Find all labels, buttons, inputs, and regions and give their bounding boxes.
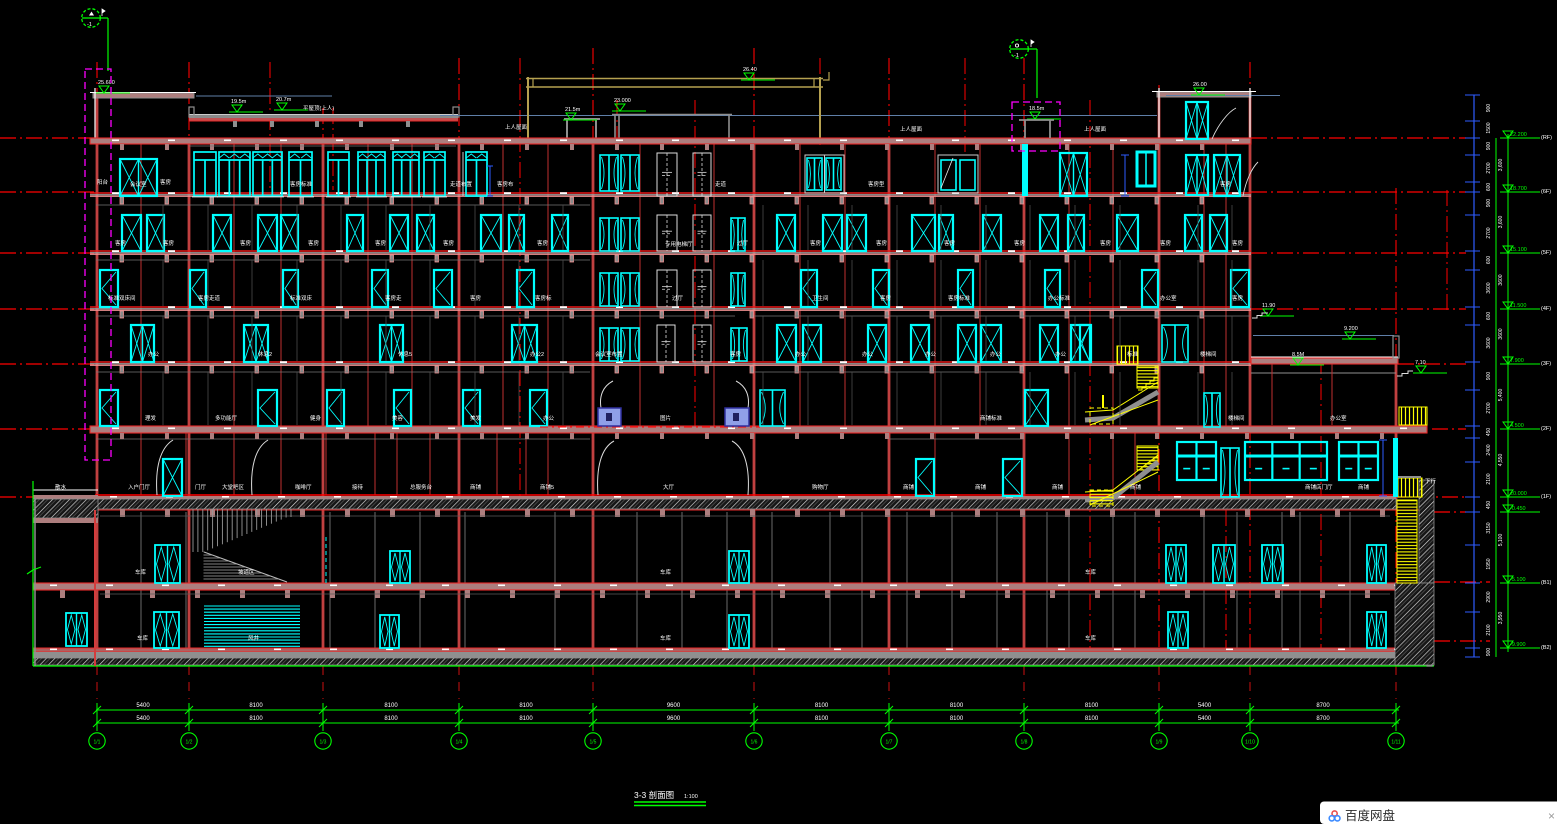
svg-text:客房: 客房	[1100, 239, 1112, 247]
svg-text:接待: 接待	[352, 483, 364, 491]
svg-text:1/1: 1/1	[94, 740, 101, 746]
svg-text:8100: 8100	[249, 716, 263, 722]
svg-text:26.00: 26.00	[1193, 82, 1207, 88]
svg-text:1/5: 1/5	[590, 740, 597, 746]
svg-text:4.500: 4.500	[1510, 423, 1524, 429]
svg-text:下行: 下行	[1425, 477, 1437, 485]
svg-text:1500: 1500	[1486, 122, 1492, 133]
svg-text:18.700: 18.700	[1510, 186, 1527, 192]
svg-text:(B2): (B2)	[1541, 645, 1552, 651]
svg-text:车库: 车库	[660, 568, 672, 576]
svg-text:8100: 8100	[1085, 716, 1099, 722]
svg-text:商铺: 商铺	[1052, 483, 1064, 491]
svg-text:客房: 客房	[443, 239, 455, 247]
svg-text:阳台: 阳台	[97, 178, 109, 186]
svg-text:多功能厅: 多功能厅	[215, 414, 238, 422]
svg-text:1:100: 1:100	[684, 794, 698, 800]
svg-text:过厅: 过厅	[672, 294, 684, 302]
svg-text:1/6: 1/6	[751, 740, 758, 746]
svg-text:休息5: 休息5	[398, 350, 412, 358]
svg-text:8100: 8100	[1085, 703, 1099, 709]
svg-text:坡道区: 坡道区	[238, 568, 255, 576]
svg-text:2700: 2700	[1486, 162, 1492, 173]
svg-text:(2F): (2F)	[1541, 426, 1551, 432]
svg-text:散水: 散水	[55, 483, 67, 491]
svg-text:走道: 走道	[715, 180, 727, 188]
svg-text:5400: 5400	[136, 716, 150, 722]
svg-text:大堂吧区: 大堂吧区	[222, 483, 245, 491]
svg-text:8700: 8700	[1316, 716, 1330, 722]
svg-text:理发: 理发	[145, 414, 157, 422]
svg-text:(RF): (RF)	[1541, 135, 1552, 141]
svg-text:美容: 美容	[392, 414, 404, 422]
svg-text:(1F): (1F)	[1541, 494, 1551, 500]
svg-text:专用电梯厅: 专用电梯厅	[665, 240, 693, 248]
svg-text:购物厅: 购物厅	[812, 483, 829, 491]
svg-text:3150: 3150	[1486, 522, 1492, 533]
svg-text:(6F): (6F)	[1541, 189, 1551, 195]
svg-text:客房: 客房	[1220, 180, 1232, 188]
svg-text:9600: 9600	[667, 716, 681, 722]
svg-text:±0.000: ±0.000	[1510, 491, 1527, 497]
svg-text:卫生间: 卫生间	[812, 294, 829, 302]
svg-text:办公: 办公	[862, 350, 874, 358]
svg-text:3,600: 3,600	[1498, 216, 1504, 229]
svg-text:900: 900	[1486, 142, 1492, 151]
svg-text:车库: 车库	[1085, 568, 1097, 576]
svg-text:客房: 客房	[1160, 239, 1172, 247]
svg-text:3600: 3600	[1498, 274, 1504, 285]
svg-text:咖啡厅: 咖啡厅	[295, 483, 312, 491]
svg-text:5400: 5400	[1198, 716, 1212, 722]
svg-text:客房: 客房	[1014, 239, 1026, 247]
svg-text:客房: 客房	[810, 239, 822, 247]
svg-text:450: 450	[1486, 501, 1492, 510]
svg-text:车库: 车库	[137, 634, 149, 642]
svg-text:办公2: 办公2	[530, 350, 544, 358]
svg-text:25.600: 25.600	[98, 80, 115, 86]
svg-text:8100: 8100	[384, 703, 398, 709]
svg-text:2700: 2700	[1486, 402, 1492, 413]
svg-text:客房走: 客房走	[385, 294, 402, 302]
svg-text:客房型: 客房型	[868, 180, 885, 188]
svg-text:办公: 办公	[148, 350, 160, 358]
svg-text:客房: 客房	[115, 239, 127, 247]
svg-text:健身: 健身	[310, 414, 322, 422]
svg-text:8100: 8100	[950, 716, 964, 722]
svg-text:8700: 8700	[1316, 703, 1330, 709]
svg-text:15.100: 15.100	[1510, 247, 1527, 253]
svg-text:900: 900	[1486, 199, 1492, 208]
svg-text:休息2: 休息2	[258, 350, 272, 358]
svg-text:21.5m: 21.5m	[565, 107, 581, 113]
svg-text:客房: 客房	[1232, 294, 1244, 302]
svg-text:办公室: 办公室	[1160, 294, 1177, 302]
svg-text:1/9: 1/9	[1156, 740, 1163, 746]
svg-text:9.200: 9.200	[1344, 326, 1358, 332]
svg-text:办公室: 办公室	[1330, 414, 1347, 422]
svg-text:商铺5: 商铺5	[540, 483, 554, 491]
svg-text:客房布: 客房布	[497, 180, 514, 188]
svg-text:客房标准: 客房标准	[290, 180, 313, 188]
svg-text:上人屋面: 上人屋面	[1084, 125, 1107, 133]
svg-text:1/2: 1/2	[186, 740, 193, 746]
svg-text:走道布置: 走道布置	[450, 180, 473, 188]
svg-text:11.500: 11.500	[1510, 303, 1526, 309]
svg-text:客房: 客房	[537, 239, 549, 247]
svg-text:平屋顶(上人): 平屋顶(上人)	[303, 104, 334, 112]
svg-text:3600: 3600	[1486, 282, 1492, 293]
svg-text:商铺: 商铺	[470, 483, 482, 491]
svg-text:-5.100: -5.100	[1510, 577, 1526, 583]
svg-text:900: 900	[1486, 372, 1492, 381]
svg-text:2700: 2700	[1486, 227, 1492, 238]
svg-text:-9.900: -9.900	[1510, 642, 1526, 648]
svg-text:办公: 办公	[543, 414, 555, 422]
svg-text:5,100: 5,100	[1498, 534, 1504, 547]
svg-text:客房: 客房	[308, 239, 320, 247]
svg-text:商铺: 商铺	[1130, 483, 1142, 491]
svg-text:(4F): (4F)	[1541, 306, 1551, 312]
svg-text:2100: 2100	[1486, 473, 1492, 484]
svg-text:门厅: 门厅	[195, 483, 207, 491]
svg-text:8100: 8100	[815, 716, 829, 722]
svg-text:标准: 标准	[1127, 350, 1139, 358]
svg-text:450: 450	[1486, 428, 1492, 437]
svg-text:(3F): (3F)	[1541, 361, 1551, 367]
svg-text:入户门厅: 入户门厅	[128, 483, 151, 491]
svg-text:1/4: 1/4	[456, 740, 463, 746]
svg-text:客房: 客房	[375, 239, 387, 247]
svg-text:风井: 风井	[248, 634, 260, 642]
svg-text:办公标准: 办公标准	[1048, 294, 1071, 302]
svg-text:26.40: 26.40	[743, 67, 757, 73]
svg-text:11.90: 11.90	[1262, 303, 1275, 309]
svg-text:5,400: 5,400	[1498, 389, 1504, 402]
svg-text:8100: 8100	[249, 703, 263, 709]
svg-text:客房: 客房	[730, 350, 742, 358]
svg-text:总服务台: 总服务台	[410, 483, 433, 491]
svg-text:过厅: 过厅	[737, 239, 749, 247]
svg-text:5400: 5400	[1198, 703, 1212, 709]
svg-text:楼梯间: 楼梯间	[1228, 414, 1245, 422]
svg-text:-1: -1	[1014, 53, 1019, 59]
svg-text:1/11: 1/11	[1391, 740, 1401, 746]
svg-text:(B1): (B1)	[1541, 580, 1552, 586]
svg-text:19.5m: 19.5m	[231, 99, 247, 105]
svg-text:2900: 2900	[1486, 591, 1492, 602]
svg-text:(5F): (5F)	[1541, 250, 1551, 256]
svg-text:客房: 客房	[160, 178, 172, 186]
svg-text:8100: 8100	[815, 703, 829, 709]
svg-text:车库: 车库	[1085, 634, 1097, 642]
svg-text:7.10: 7.10	[1415, 360, 1426, 366]
svg-text:百度网盘: 百度网盘	[1345, 808, 1395, 823]
svg-text:×: ×	[1548, 809, 1555, 823]
svg-text:会议室布置: 会议室布置	[595, 350, 623, 358]
svg-text:600: 600	[1486, 183, 1492, 192]
svg-text:办公: 办公	[795, 350, 807, 358]
svg-text:1/10: 1/10	[1245, 740, 1255, 746]
svg-text:8100: 8100	[384, 716, 398, 722]
svg-text:20.7m: 20.7m	[276, 97, 292, 103]
svg-text:标准双床间: 标准双床间	[108, 294, 136, 302]
svg-text:8.5M: 8.5M	[1292, 352, 1305, 358]
svg-text:客房: 客房	[163, 239, 175, 247]
svg-text:客房标: 客房标	[535, 294, 552, 302]
svg-text:办公: 办公	[990, 350, 1002, 358]
svg-text:8100: 8100	[519, 703, 533, 709]
svg-text:8100: 8100	[519, 716, 533, 722]
svg-text:8100: 8100	[950, 703, 964, 709]
svg-text:商铺标准: 商铺标准	[980, 414, 1003, 422]
svg-text:1950: 1950	[1486, 558, 1492, 569]
svg-text:18.5m: 18.5m	[1029, 106, 1045, 112]
svg-text:图片: 图片	[660, 414, 671, 422]
svg-text:3,600: 3,600	[1498, 159, 1504, 172]
svg-text:5400: 5400	[136, 703, 150, 709]
svg-text:美发: 美发	[470, 414, 482, 422]
svg-text:900: 900	[1486, 104, 1492, 113]
svg-text:车库: 车库	[660, 634, 672, 642]
svg-text:商铺: 商铺	[1358, 483, 1370, 491]
svg-text:1/8: 1/8	[1021, 740, 1028, 746]
svg-text:3,950: 3,950	[1498, 612, 1504, 625]
svg-text:600: 600	[1486, 256, 1492, 265]
svg-text:客房: 客房	[240, 239, 252, 247]
svg-text:1/3: 1/3	[320, 740, 327, 746]
svg-text:3-3 剖面图: 3-3 剖面图	[634, 790, 674, 800]
svg-text:1/7: 1/7	[886, 740, 893, 746]
svg-text:客房: 客房	[1232, 239, 1244, 247]
svg-text:22.200: 22.200	[1510, 132, 1527, 138]
svg-text:会议室: 会议室	[130, 180, 147, 188]
svg-text:2100: 2100	[1486, 624, 1492, 635]
svg-text:3600: 3600	[1498, 328, 1504, 339]
svg-text:车库: 车库	[135, 568, 147, 576]
svg-text:4,550: 4,550	[1498, 454, 1504, 467]
svg-text:上人屋面: 上人屋面	[900, 125, 923, 133]
svg-text:商铺: 商铺	[903, 483, 915, 491]
svg-text:上人屋面: 上人屋面	[505, 123, 528, 131]
svg-text:标准双床: 标准双床	[290, 294, 313, 302]
svg-text:客房: 客房	[470, 294, 482, 302]
svg-text:客房: 客房	[876, 239, 888, 247]
svg-text:商铺: 商铺	[975, 483, 987, 491]
svg-text:600: 600	[1486, 312, 1492, 321]
svg-text:9600: 9600	[667, 703, 681, 709]
svg-text:23.000: 23.000	[614, 98, 631, 104]
svg-text:2400: 2400	[1486, 444, 1492, 455]
svg-text:客房: 客房	[944, 239, 956, 247]
svg-text:办公: 办公	[925, 350, 937, 358]
svg-text:-0.450: -0.450	[1510, 506, 1526, 512]
svg-text:办公: 办公	[1055, 350, 1067, 358]
svg-text:3600: 3600	[1486, 337, 1492, 348]
svg-text:客房: 客房	[880, 294, 892, 302]
svg-text:7.900: 7.900	[1510, 358, 1524, 364]
svg-text:客房走道: 客房走道	[198, 294, 221, 302]
svg-text:900: 900	[1486, 648, 1492, 657]
svg-text:-1: -1	[87, 22, 92, 28]
svg-text:商铺店门厅: 商铺店门厅	[1305, 483, 1333, 491]
svg-text:大厅: 大厅	[663, 483, 675, 491]
svg-text:楼梯间: 楼梯间	[1200, 350, 1217, 358]
svg-text:客房标准: 客房标准	[948, 294, 971, 302]
